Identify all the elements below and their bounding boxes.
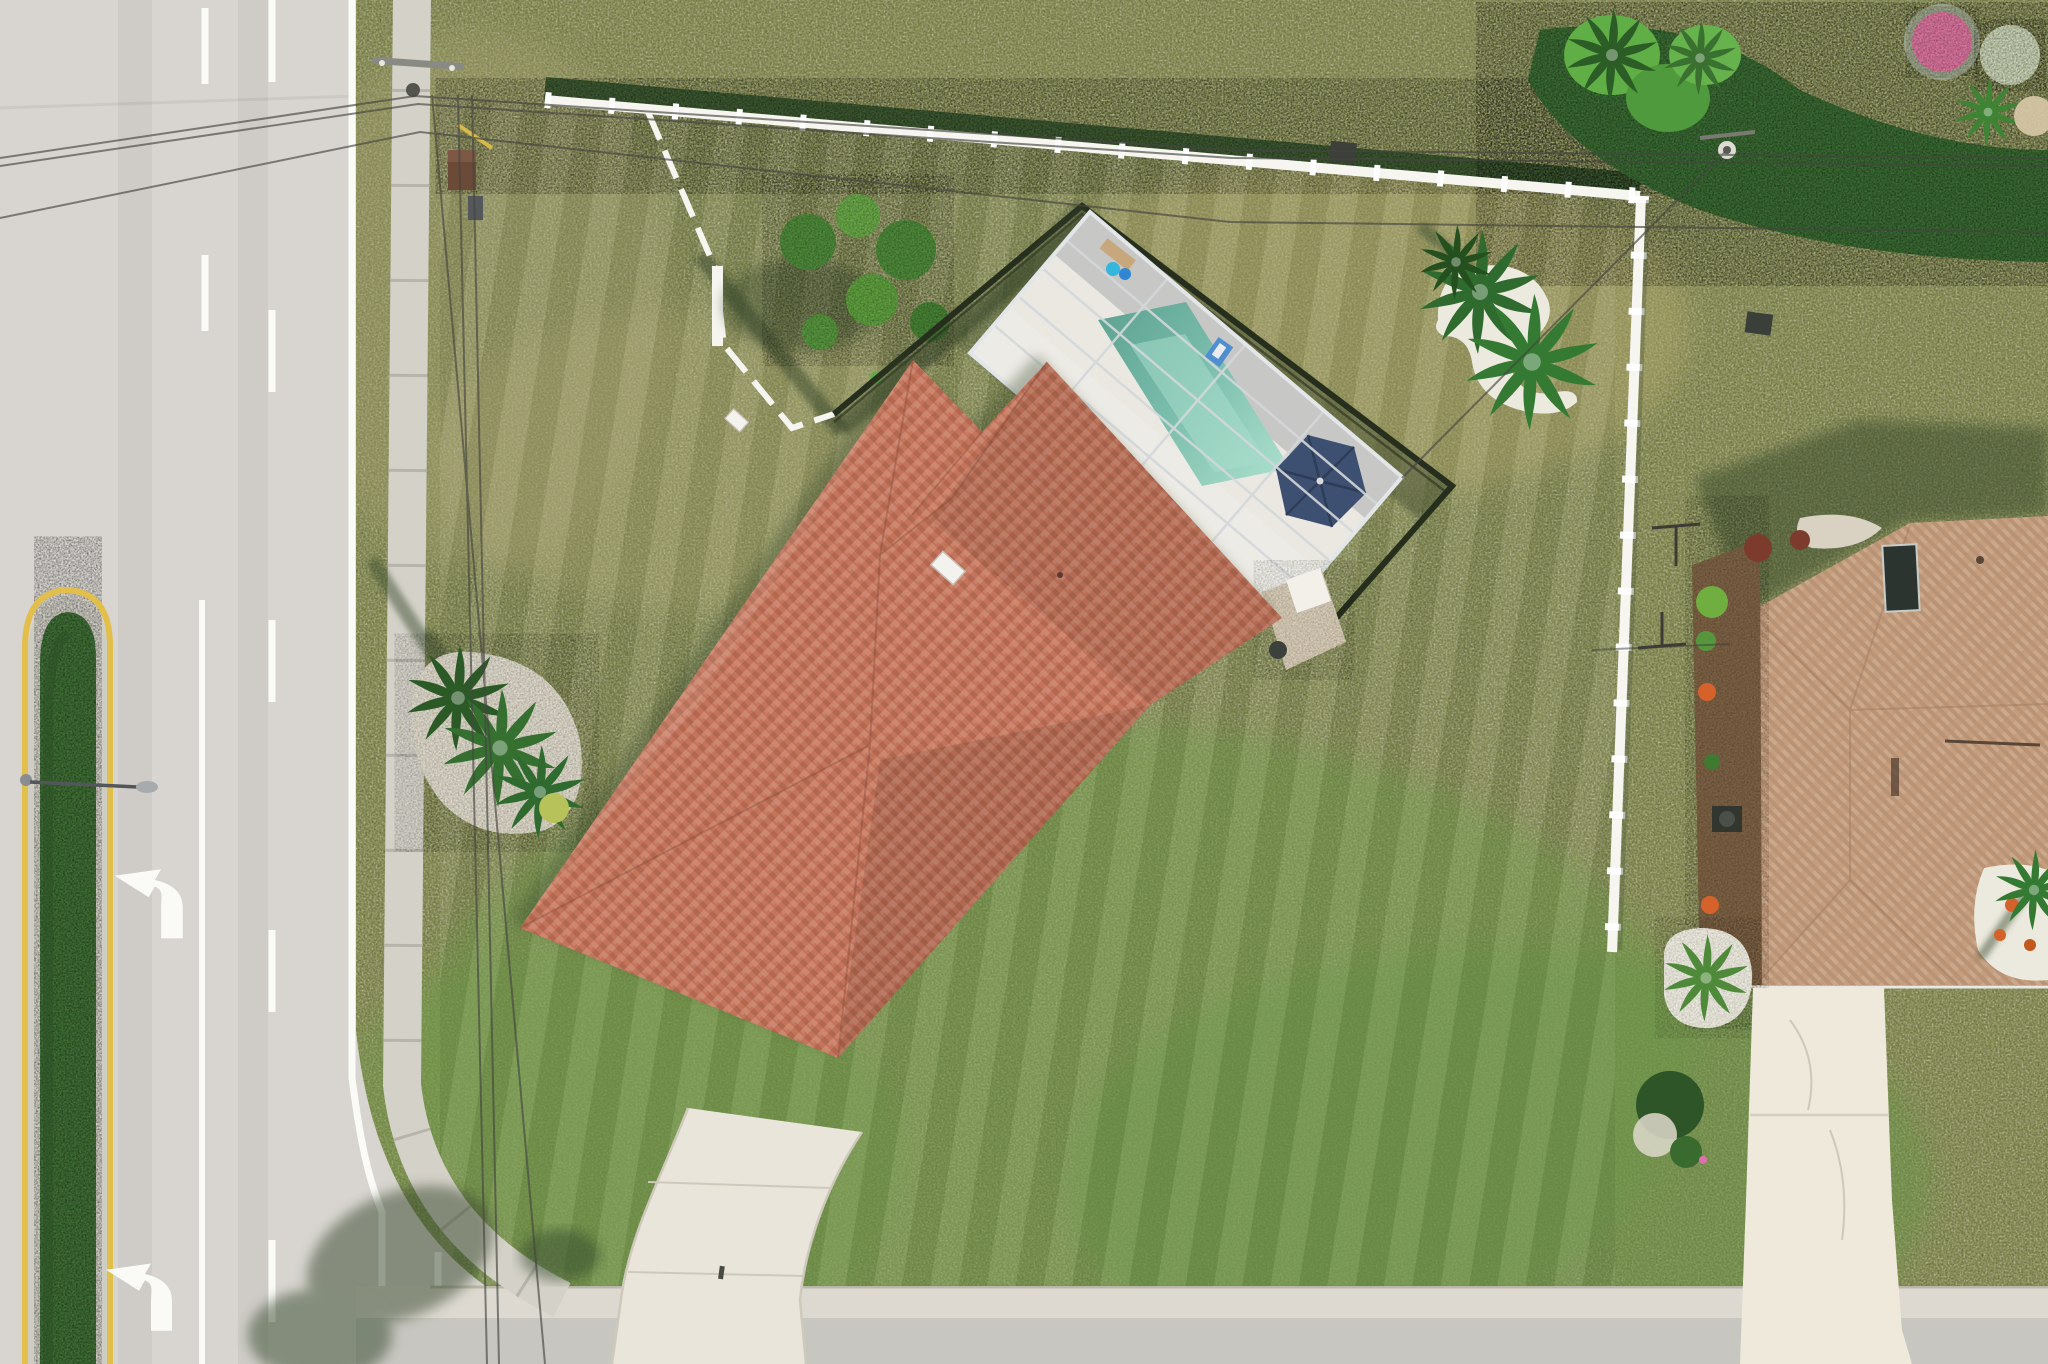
maroon-shrub (1744, 534, 1772, 562)
transformer-top (448, 150, 476, 162)
umbrella-pole (1317, 478, 1324, 485)
orange-flowers (1994, 929, 2006, 941)
pool-float (1106, 262, 1120, 276)
street-light-base (20, 774, 32, 786)
scene-canvas (0, 0, 2048, 1364)
roof-vent (1057, 572, 1063, 578)
pink-lawn-ornament (1699, 1156, 1707, 1164)
shrub (1704, 754, 1720, 770)
ac-fan (1719, 811, 1735, 827)
insulator (449, 65, 455, 71)
maroon-shrub (1790, 530, 1810, 550)
bush-texture (1980, 25, 2040, 85)
bush-texture (778, 190, 938, 350)
fence-panel (712, 266, 723, 346)
yellow-green-shrub (539, 793, 569, 823)
grill (1269, 641, 1287, 659)
backyard-grill (1745, 311, 1774, 335)
shrub (1696, 631, 1716, 651)
bush-texture (1912, 12, 1972, 72)
tire-track (238, 0, 268, 1364)
tire-track (118, 0, 152, 1364)
orange-flowers (2024, 939, 2036, 951)
pole-top (406, 83, 420, 97)
road-median (25, 590, 110, 1364)
roof-vent (1976, 556, 1984, 564)
insulator (379, 60, 385, 66)
roof-ladder-vent (1891, 758, 1899, 796)
pool-float (1119, 268, 1131, 280)
orange-flower-shrub (1698, 683, 1716, 701)
street-light-head (136, 781, 158, 793)
screened-entry (1882, 544, 1919, 612)
aerial-photo (0, 0, 2048, 1364)
shrub (1696, 586, 1728, 618)
orange-flower-shrub (1701, 896, 1719, 914)
bush (1670, 1136, 1702, 1168)
